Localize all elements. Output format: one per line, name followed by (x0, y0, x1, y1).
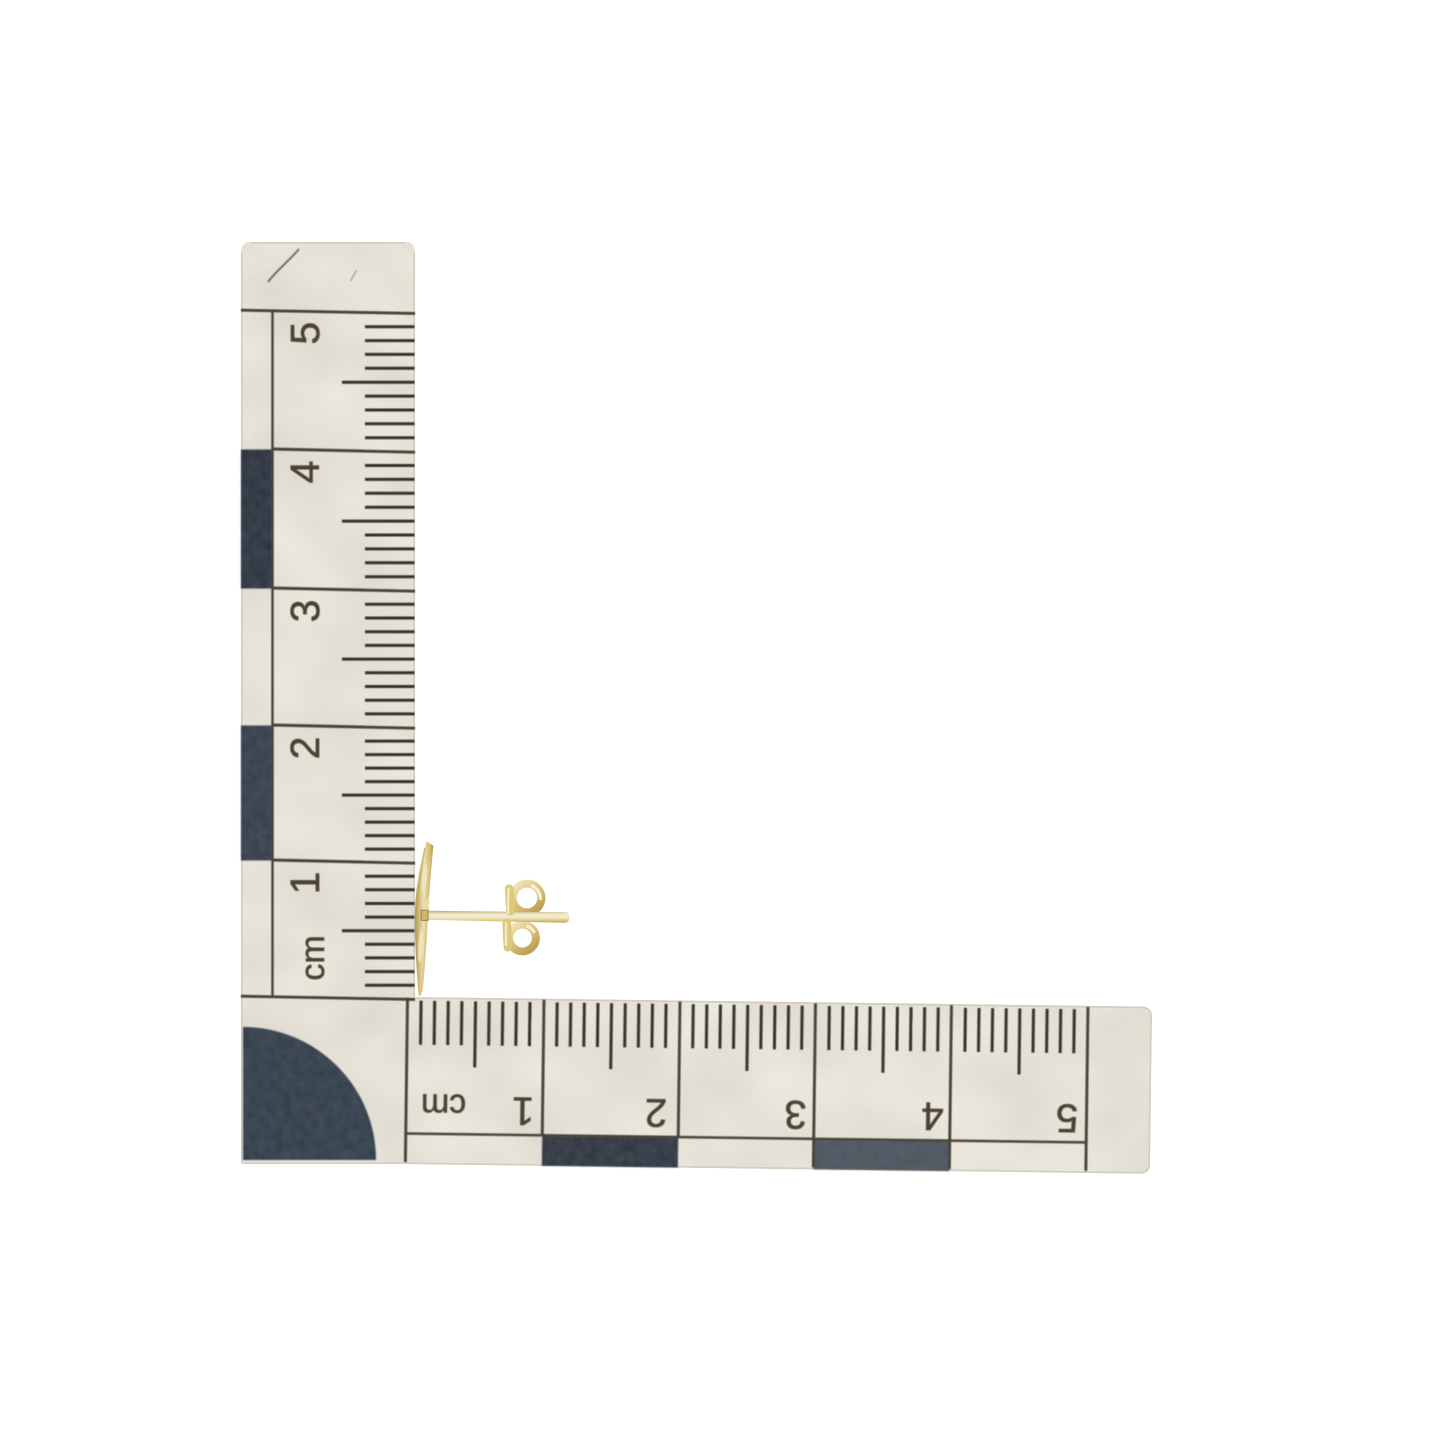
svg-text:3: 3 (784, 1092, 807, 1136)
svg-text:cm: cm (294, 935, 332, 980)
svg-text:2: 2 (645, 1090, 668, 1134)
svg-text:1: 1 (282, 872, 328, 895)
svg-text:5: 5 (1056, 1096, 1079, 1140)
svg-text:1: 1 (512, 1088, 535, 1132)
svg-text:3: 3 (282, 600, 328, 623)
svg-text:cm: cm (421, 1086, 467, 1125)
svg-text:2: 2 (282, 737, 328, 760)
svg-text:4: 4 (282, 461, 328, 484)
svg-text:5: 5 (282, 322, 328, 345)
svg-text:4: 4 (921, 1094, 944, 1138)
